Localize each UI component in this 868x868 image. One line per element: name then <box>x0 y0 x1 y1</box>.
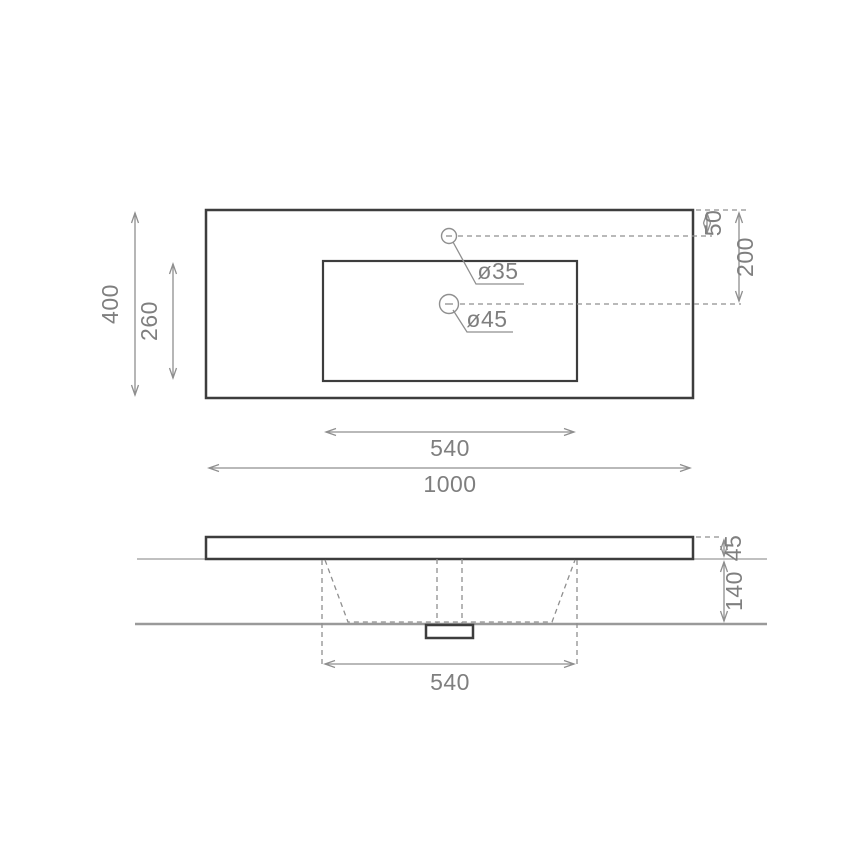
faucet-hole-diameter-label: ø35 <box>477 258 518 284</box>
depth-dimension-label: 400 <box>97 284 123 324</box>
slab-profile-outline <box>206 537 693 559</box>
basin-depth-dimension-label: 260 <box>136 301 162 341</box>
top-view: ø35 ø45 400 260 50 200 540 1000 <box>97 210 758 497</box>
washbasin-dimension-drawing: ø35 ø45 400 260 50 200 540 1000 <box>0 0 868 868</box>
basin-depth-side-dimension-label: 140 <box>721 571 747 611</box>
overall-width-dimension-label: 1000 <box>423 471 476 497</box>
faucet-offset-dimension-label: 50 <box>700 210 726 237</box>
drain-offset-dimension-label: 200 <box>732 237 758 277</box>
drain-fitting-outline <box>426 625 473 638</box>
drain-hole-diameter-label: ø45 <box>466 306 507 332</box>
side-view: 45 140 540 <box>135 535 767 695</box>
basin-width-side-dimension-label: 540 <box>430 669 470 695</box>
basin-width-dimension-label: 540 <box>430 435 470 461</box>
hidden-basin-profile <box>325 560 575 622</box>
thickness-dimension-label: 45 <box>720 535 746 562</box>
technical-drawing-page: ø35 ø45 400 260 50 200 540 1000 <box>0 0 868 868</box>
